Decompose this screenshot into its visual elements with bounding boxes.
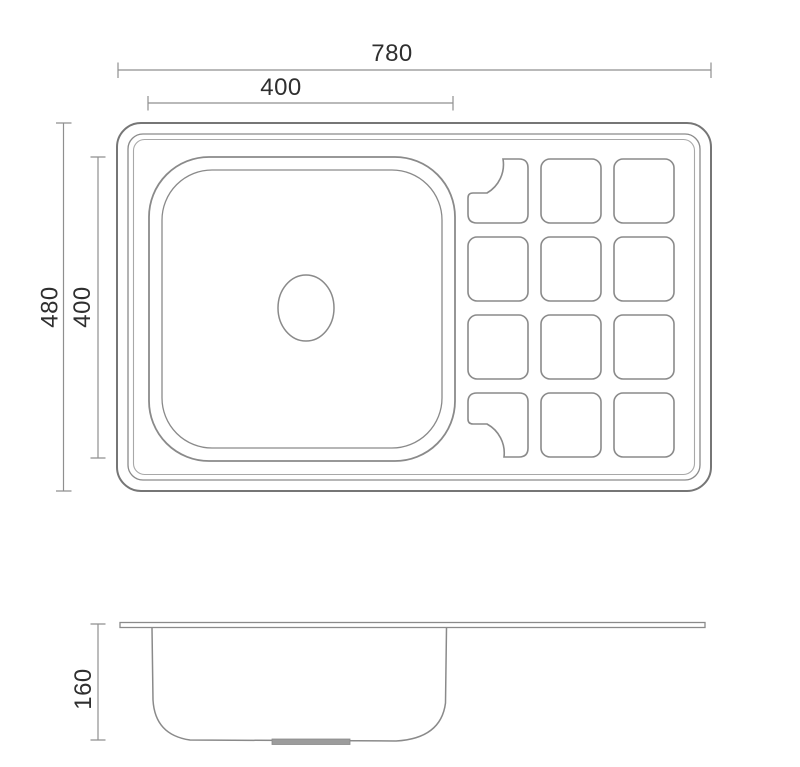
dimension-bowl-depth: 400	[69, 157, 106, 458]
drainboard-rib	[541, 315, 601, 379]
dimension-label-overall-width: 780	[371, 40, 413, 67]
drainboard-rib	[614, 393, 674, 457]
sink-rim-line-inner	[134, 140, 695, 475]
dimension-label-overall-depth: 480	[37, 286, 64, 328]
bowl-outer-rim	[149, 157, 455, 461]
dimension-label-bowl-height: 160	[70, 668, 97, 710]
drainboard-rib	[541, 237, 601, 301]
drain-hole	[278, 275, 334, 341]
drainboard-rib	[614, 159, 674, 223]
dimension-bowl-width: 400	[148, 74, 453, 111]
drainboard-rib	[468, 237, 528, 301]
drainboard-rib-notched-bottom	[468, 393, 528, 457]
sink-technical-drawing: 780 400 480 400 160	[0, 0, 800, 767]
drainboard-rib	[468, 315, 528, 379]
drainboard-rib-notched-top	[468, 159, 528, 223]
sink-side-view	[120, 623, 705, 745]
dimension-overall-width: 780	[118, 40, 711, 78]
dimension-overall-depth: 480	[37, 123, 72, 491]
drainboard-grid	[468, 159, 674, 457]
dimension-label-bowl-depth: 400	[69, 286, 96, 328]
drawing-svg: 780 400 480 400 160	[0, 0, 800, 767]
dimension-line-overall-width	[118, 63, 711, 79]
drainboard-rib	[541, 393, 601, 457]
drainboard-rib	[614, 237, 674, 301]
drain-outlet	[272, 739, 350, 745]
bowl-inner-wall	[162, 170, 442, 448]
drainboard-rib	[541, 159, 601, 223]
sink-top-view	[117, 123, 711, 491]
dimension-bowl-height: 160	[70, 624, 106, 740]
drainboard-rib	[614, 315, 674, 379]
dimension-label-bowl-width: 400	[260, 74, 302, 101]
sink-outer-edge	[117, 123, 711, 491]
bowl-profile	[152, 628, 447, 741]
worktop-flange	[120, 623, 705, 628]
